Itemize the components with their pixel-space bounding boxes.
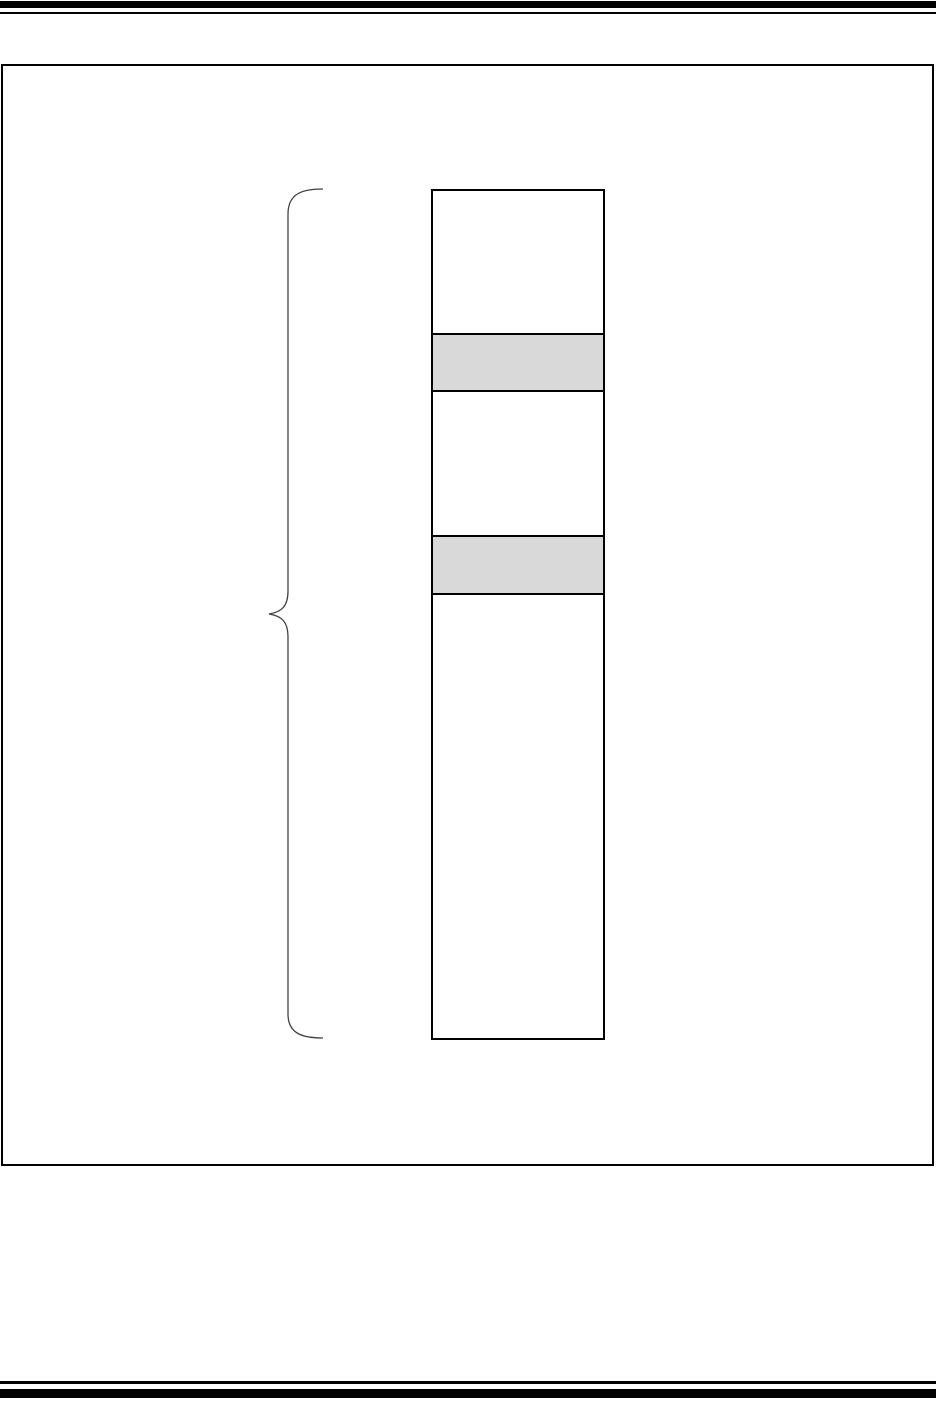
memory-segment-5: [433, 593, 603, 1038]
footer-rule-thin: [0, 1381, 936, 1384]
footer-rule-thick: [0, 1389, 936, 1398]
memory-segment-3: [433, 390, 603, 535]
header-rule-thin: [0, 12, 936, 14]
header-rule-thick: [0, 1, 936, 8]
memory-map-column: [431, 189, 605, 1040]
memory-segment-2-shaded: [433, 333, 603, 390]
memory-segment-4-shaded: [433, 535, 603, 593]
memory-segment-1: [433, 191, 603, 333]
page: { "page": { "background": "#ffffff", "ru…: [0, 0, 936, 1412]
